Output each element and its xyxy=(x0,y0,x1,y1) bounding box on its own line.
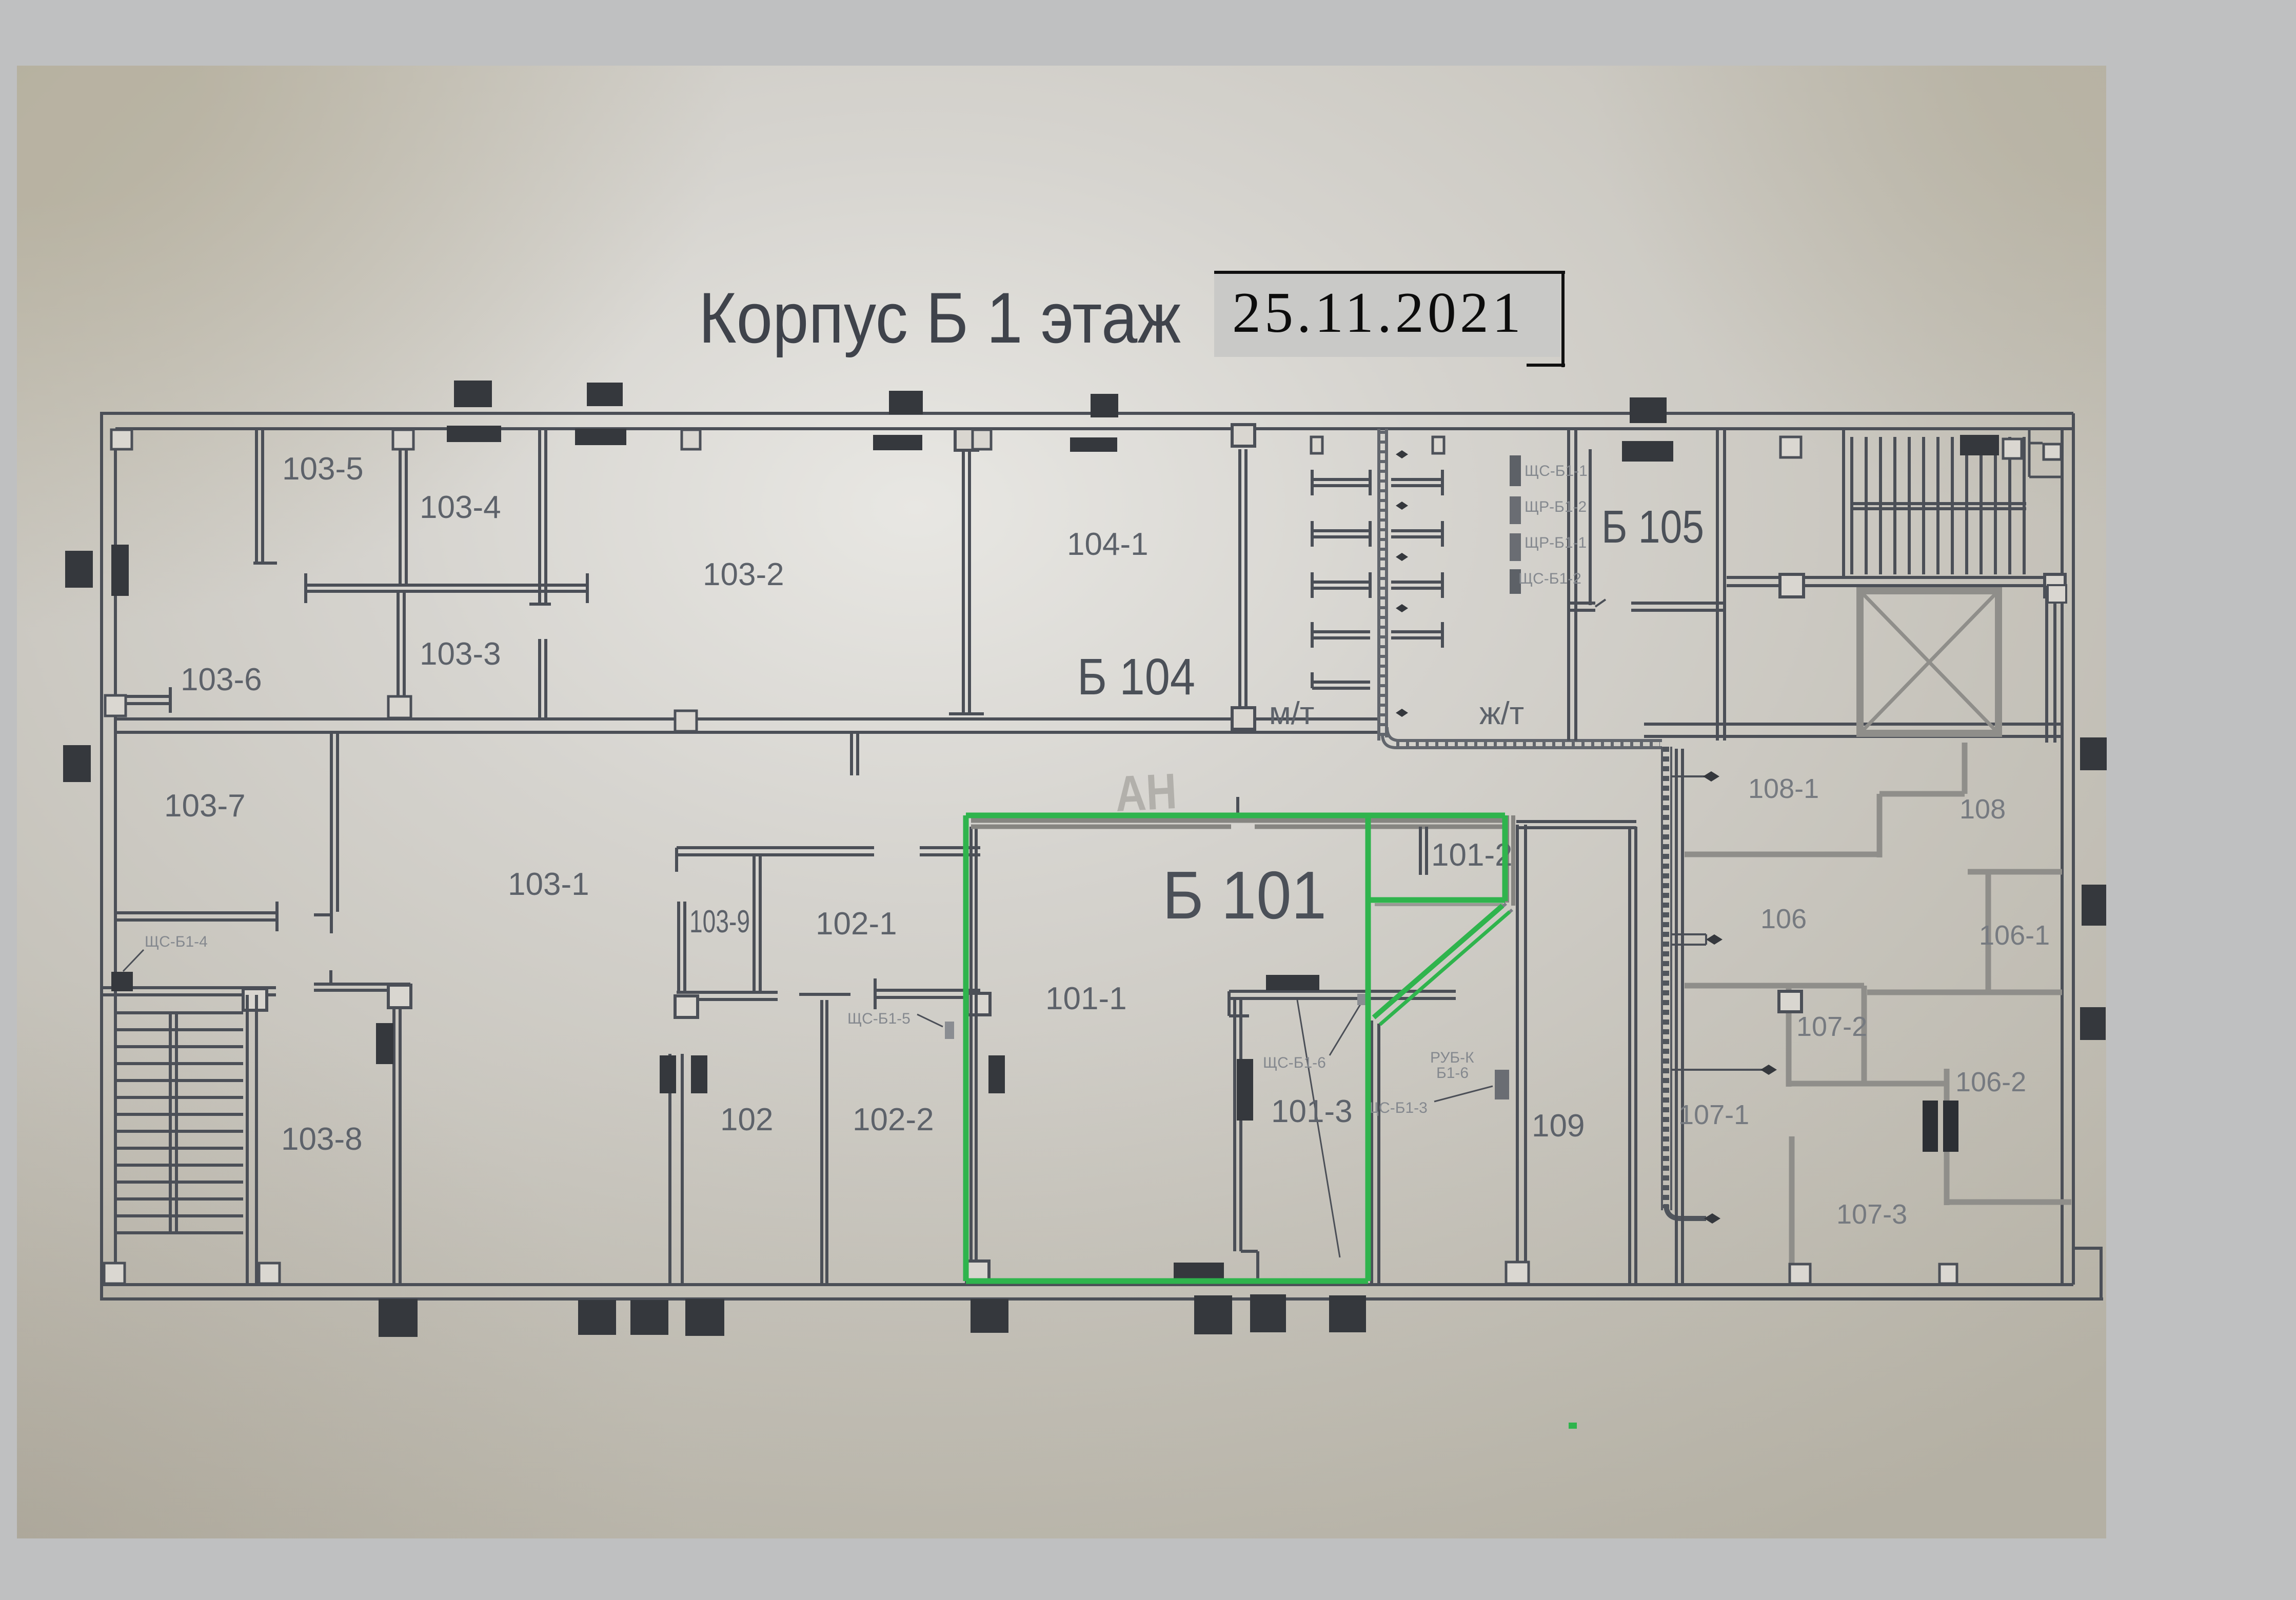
svg-text:106-2: 106-2 xyxy=(1955,1067,2026,1097)
svg-text:103-7: 103-7 xyxy=(164,788,246,824)
svg-text:ЩС-Б1-1: ЩС-Б1-1 xyxy=(1525,463,1588,479)
svg-text:103-3: 103-3 xyxy=(420,636,501,672)
svg-text:ЩС-Б1-2: ЩС-Б1-2 xyxy=(1518,570,1581,587)
svg-text:РУБ-К: РУБ-К xyxy=(1430,1049,1474,1066)
svg-text:106: 106 xyxy=(1760,904,1807,934)
svg-text:Б 101: Б 101 xyxy=(1162,857,1327,933)
svg-text:106-1: 106-1 xyxy=(1979,920,2050,951)
svg-text:103-9: 103-9 xyxy=(689,904,750,939)
svg-text:ЩС-Б1-4: ЩС-Б1-4 xyxy=(145,933,208,950)
svg-text:103-5: 103-5 xyxy=(282,451,364,487)
svg-text:101-1: 101-1 xyxy=(1045,981,1127,1016)
svg-text:109: 109 xyxy=(1532,1108,1585,1144)
svg-text:103-2: 103-2 xyxy=(703,557,784,592)
svg-text:103-4: 103-4 xyxy=(420,490,501,525)
svg-text:Б 105: Б 105 xyxy=(1601,502,1704,553)
svg-text:ж/т: ж/т xyxy=(1479,696,1524,731)
svg-text:ЩР-Б1-2: ЩР-Б1-2 xyxy=(1525,498,1587,515)
svg-text:102: 102 xyxy=(720,1102,773,1137)
svg-text:Б1-6: Б1-6 xyxy=(1436,1065,1469,1082)
svg-text:ЩР-Б1-1: ЩР-Б1-1 xyxy=(1525,534,1587,551)
svg-text:ЩС-Б1-6: ЩС-Б1-6 xyxy=(1263,1054,1326,1071)
svg-text:Б 104: Б 104 xyxy=(1077,648,1195,706)
svg-text:108-1: 108-1 xyxy=(1748,773,1819,804)
svg-text:ЩС-Б1-5: ЩС-Б1-5 xyxy=(847,1010,911,1027)
svg-text:103-6: 103-6 xyxy=(181,662,262,697)
svg-text:107-3: 107-3 xyxy=(1836,1199,1907,1230)
svg-text:Корпус Б 1 этаж: Корпус Б 1 этаж xyxy=(699,277,1181,358)
svg-text:ЩС-Б1-3: ЩС-Б1-3 xyxy=(1364,1099,1428,1116)
svg-text:108: 108 xyxy=(1959,794,2006,825)
svg-text:104-1: 104-1 xyxy=(1067,527,1149,562)
svg-text:25.11.2021: 25.11.2021 xyxy=(1232,281,1525,345)
svg-text:102-2: 102-2 xyxy=(853,1102,934,1137)
svg-text:103-1: 103-1 xyxy=(508,867,589,902)
svg-text:101-3: 101-3 xyxy=(1271,1094,1353,1129)
svg-text:107-2: 107-2 xyxy=(1796,1011,1867,1042)
svg-text:102-1: 102-1 xyxy=(816,906,897,942)
svg-text:101-2: 101-2 xyxy=(1431,837,1513,873)
svg-text:107-1: 107-1 xyxy=(1678,1099,1749,1130)
svg-text:103-8: 103-8 xyxy=(281,1122,363,1157)
svg-text:м/т: м/т xyxy=(1269,696,1314,731)
